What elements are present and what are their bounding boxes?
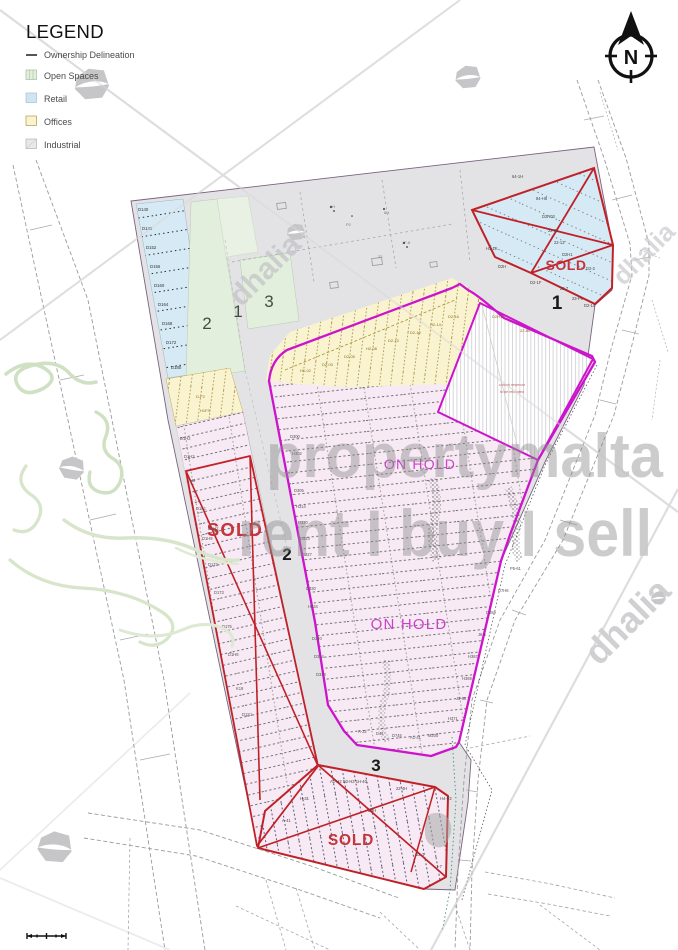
svg-text:D1H2: D1H2 [180,436,191,441]
svg-text:Open Spaces: Open Spaces [44,71,99,81]
svg-text:Ownership Delineation: Ownership Delineation [44,50,135,60]
svg-text:Industrial: Industrial [44,140,81,150]
svg-text:SOLD: SOLD [546,257,587,273]
svg-text:D164: D164 [158,302,169,307]
svg-text:D340: D340 [312,636,323,641]
svg-text:SOLD: SOLD [328,832,374,849]
svg-text:M200: M200 [428,733,439,738]
svg-text:J3-68: J3-68 [456,696,467,701]
svg-text:2: 2 [202,314,211,333]
svg-text:D1F1: D1F1 [196,506,207,511]
svg-text:1F-8: 1F-8 [402,240,411,245]
svg-text:84-H8: 84-H8 [536,196,548,201]
svg-text:D2H03: D2H03 [542,214,555,219]
svg-text:D2-16: D2-16 [448,314,460,319]
svg-text:H1-02: H1-02 [300,368,312,373]
svg-text:D2-03: D2-03 [322,362,334,367]
svg-text:D2H: D2H [498,264,506,269]
svg-text:D1H3: D1H3 [184,454,195,459]
svg-text:23-P6: 23-P6 [572,296,584,301]
svg-text:H371: H371 [448,716,459,721]
svg-text:H-31: H-31 [300,796,310,801]
svg-text:D2-2: D2-2 [586,266,596,271]
svg-text:D2H1S: D2H1S [492,314,505,319]
svg-text:to be relocated: to be relocated [500,390,524,394]
svg-text:D156: D156 [150,264,161,269]
svg-text:1-7: 1-7 [436,864,443,869]
svg-text:D2-12: D2-12 [410,330,422,335]
svg-text:22-4H: 22-4H [396,786,407,791]
svg-text:3: 3 [264,292,273,311]
svg-text:ON HOLD: ON HOLD [371,616,448,633]
svg-text:D140: D140 [138,207,149,212]
svg-text:D2-14: D2-14 [584,303,596,308]
svg-text:D2-05: D2-05 [344,354,356,359]
svg-text:D172: D172 [166,340,177,345]
svg-text:22-80: 22-80 [520,328,531,333]
svg-text:D173: D173 [214,590,225,595]
svg-text:A-41: A-41 [282,818,291,823]
svg-text:H2-14: H2-14 [430,322,442,327]
svg-text:Retail: Retail [44,94,67,104]
svg-text:D1S1: D1S1 [242,712,253,717]
svg-text:A1-41: A1-41 [410,735,422,740]
svg-text:N: N [624,47,638,69]
svg-text:H367: H367 [468,654,479,659]
svg-text:D2-10: D2-10 [388,338,400,343]
svg-text:D2-1F: D2-1F [530,280,542,285]
svg-text:A1-H2 D2-H3 1H-40: A1-H2 D2-H3 1H-40 [330,779,368,784]
svg-text:D168: D168 [162,321,173,326]
svg-text:H369: H369 [462,676,473,681]
svg-text:H3-1K: H3-1K [486,246,498,251]
svg-text:D348: D348 [316,672,327,677]
svg-text:H4-P2: H4-P2 [440,796,452,801]
svg-text:K19: K19 [236,686,244,691]
svg-text:D180: D180 [171,365,182,370]
svg-text:D44: D44 [376,731,384,736]
svg-text:D4H: D4H [368,808,376,813]
svg-text:A-32: A-32 [358,729,367,734]
svg-text:H2-08: H2-08 [366,346,378,351]
svg-text:22-7: 22-7 [560,286,569,291]
svg-text:H334: H334 [308,604,319,609]
svg-text:D2H1: D2H1 [562,252,573,257]
svg-text:H3: H3 [190,478,196,483]
svg-text:8H: 8H [384,210,389,215]
svg-text:D1H2: D1H2 [208,526,219,531]
svg-text:22: 22 [378,254,383,259]
svg-text:D160: D160 [154,283,165,288]
svg-text:22-1: 22-1 [416,852,425,857]
svg-text:D1H9: D1H9 [202,536,213,541]
svg-text:P2: P2 [346,222,352,227]
svg-text:D745: D745 [392,733,403,738]
svg-text:D330: D330 [306,586,317,591]
svg-text:64-1H: 64-1H [512,174,523,179]
svg-text:J6-5: J6-5 [478,632,487,637]
svg-text:H1F3: H1F3 [200,408,211,413]
svg-text:22-06: 22-06 [548,228,559,233]
svg-text:1H: 1H [330,204,335,209]
svg-text:rent I buy I sell: rent I buy I sell [238,496,652,570]
svg-text:D152: D152 [146,245,157,250]
svg-text:D1H8: D1H8 [228,652,239,657]
svg-text:3: 3 [371,756,380,775]
svg-text:D344: D344 [314,654,325,659]
svg-text:Offices: Offices [44,117,72,127]
svg-text:D172: D172 [208,562,219,567]
svg-text:22-12: 22-12 [554,240,565,245]
svg-text:D-F2: D-F2 [196,394,206,399]
svg-text:LEGEND: LEGEND [26,21,104,42]
svg-text:1: 1 [552,293,563,314]
